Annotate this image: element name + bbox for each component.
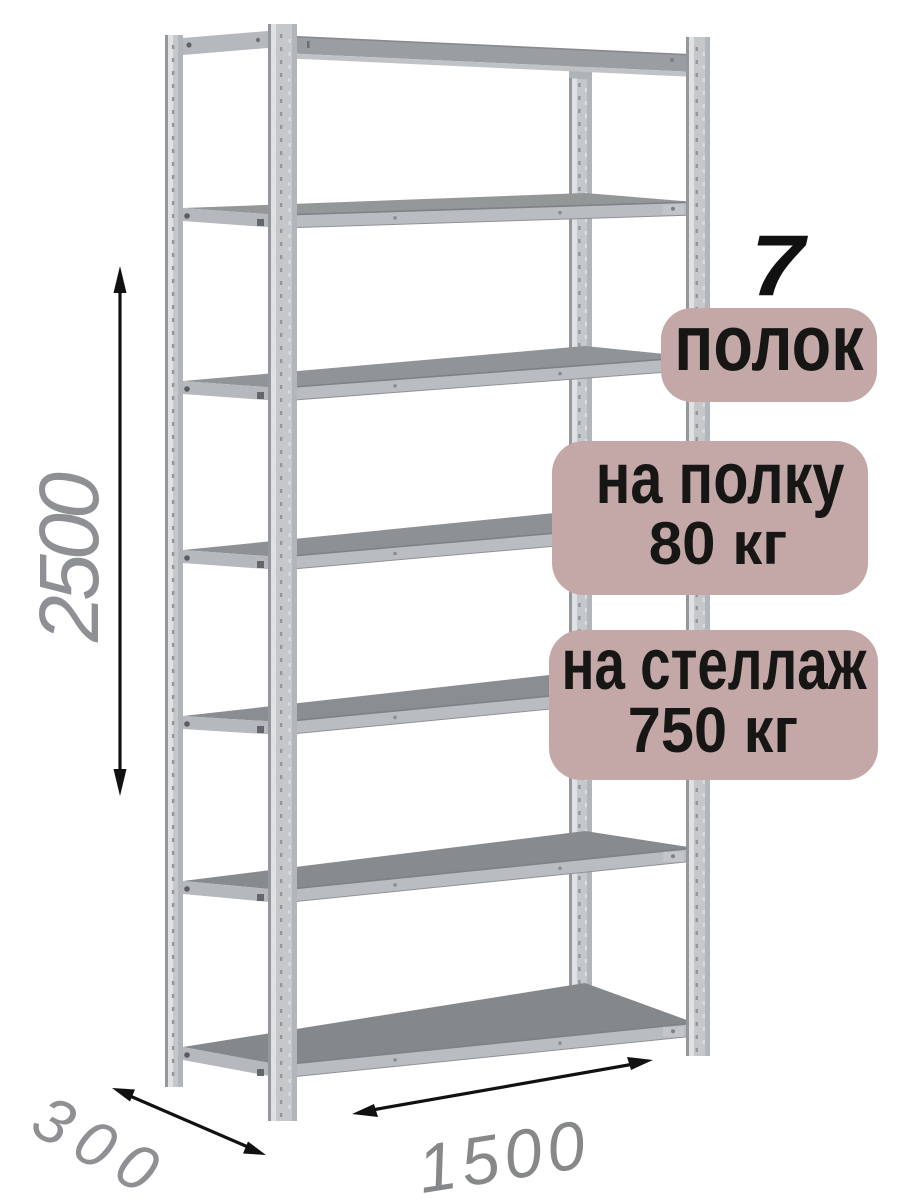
svg-text:полок: полок	[674, 300, 864, 387]
svg-text:на стеллаж: на стеллаж	[561, 624, 867, 705]
svg-text:80 кг: 80 кг	[649, 510, 787, 577]
svg-text:2500: 2500	[22, 472, 116, 643]
svg-text:1500: 1500	[412, 1107, 590, 1200]
svg-text:300: 300	[21, 1081, 181, 1200]
svg-text:на полку: на полку	[596, 438, 845, 519]
svg-text:750 кг: 750 кг	[628, 695, 798, 766]
